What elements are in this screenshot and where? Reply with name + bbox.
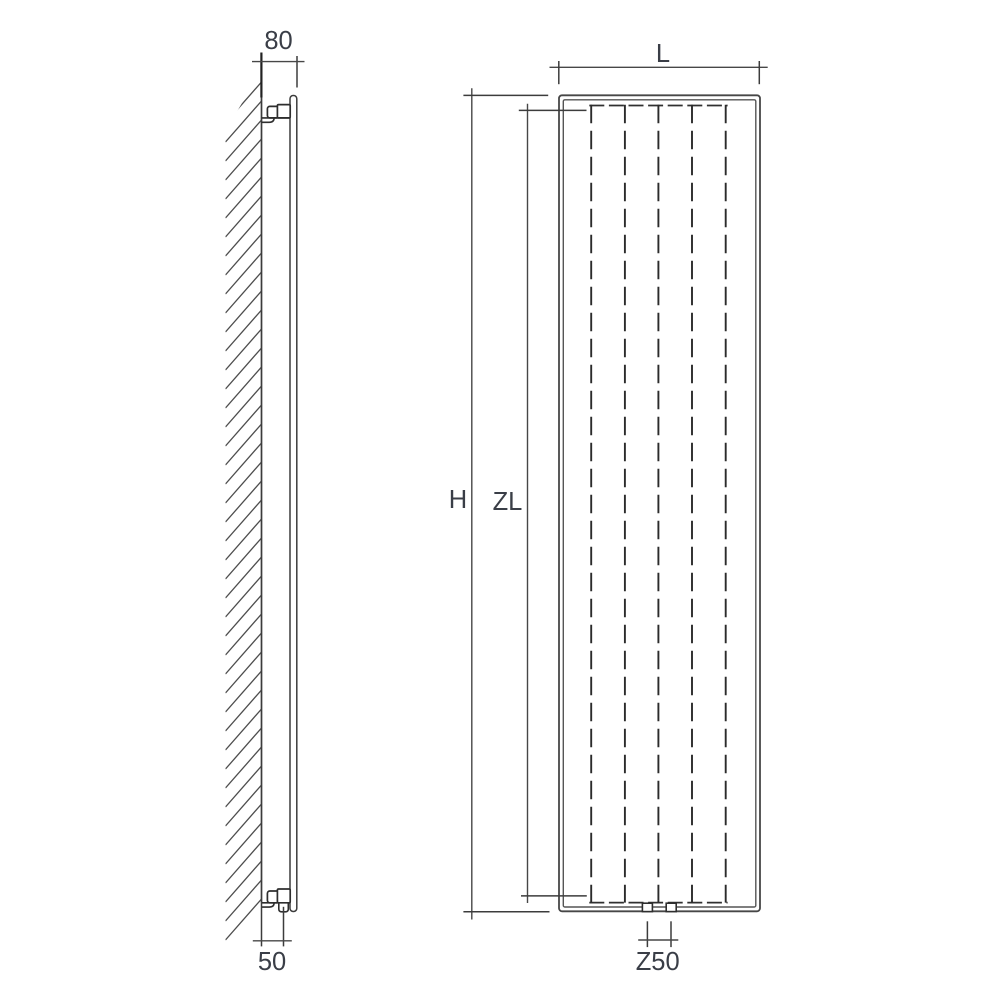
svg-text:L: L	[656, 40, 670, 68]
svg-text:Z50: Z50	[636, 948, 680, 976]
svg-text:80: 80	[264, 27, 292, 55]
svg-text:ZL: ZL	[493, 488, 523, 516]
svg-text:50: 50	[258, 948, 286, 976]
svg-text:H: H	[449, 486, 467, 514]
